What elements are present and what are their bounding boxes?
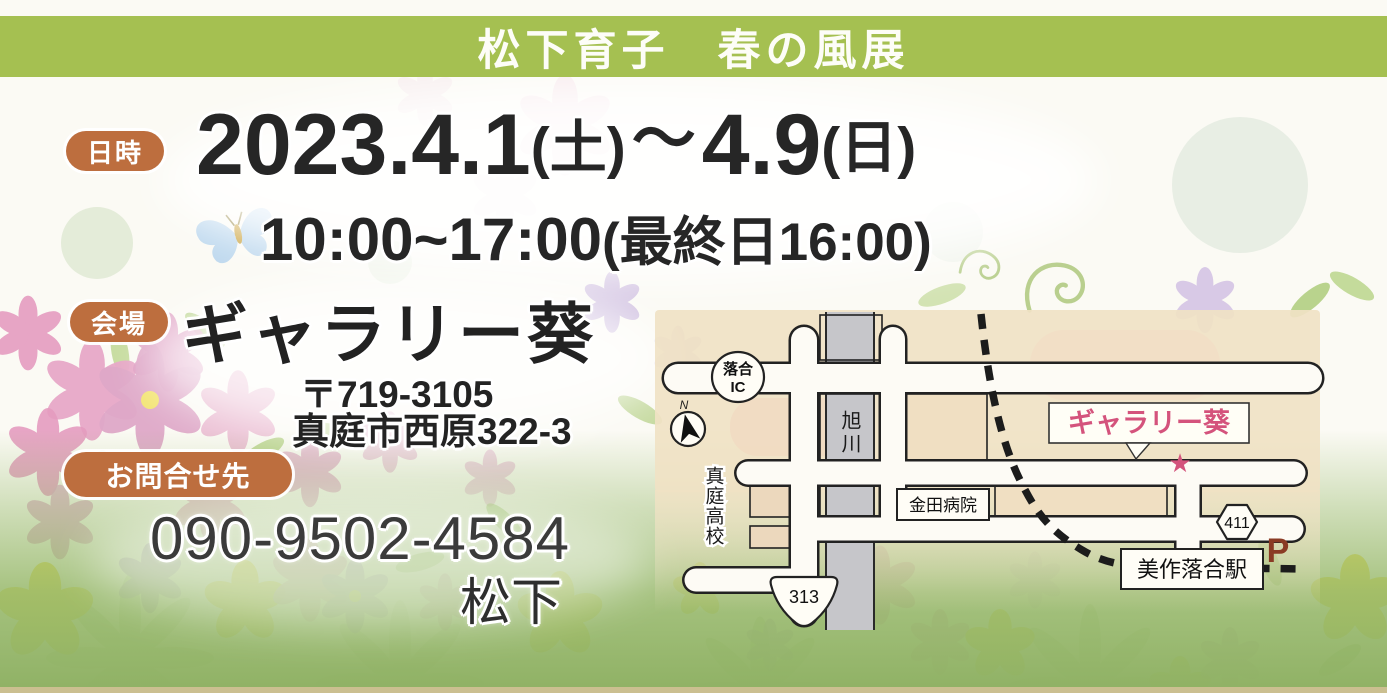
- exhibition-hours: 10:00~17:00(最終日16:00): [260, 200, 932, 276]
- river-label: 旭川: [838, 410, 861, 456]
- card-bottom-edge: [0, 687, 1387, 693]
- datetime-badge: 日時: [66, 131, 164, 171]
- svg-text:IC: IC: [731, 379, 746, 396]
- contact-badge: お問合せ先: [64, 452, 292, 497]
- venue-address: 真庭市西原322-3: [292, 401, 572, 455]
- svg-text:313: 313: [789, 587, 819, 607]
- svg-text:N: N: [680, 398, 689, 412]
- parking-icon: P: [1267, 532, 1290, 570]
- page-title: 松下育子 春の風展: [478, 16, 910, 78]
- route-411-sign: 411: [1217, 505, 1257, 539]
- svg-text:金田病院: 金田病院: [909, 496, 977, 515]
- svg-text:落合: 落合: [723, 360, 754, 378]
- title-bar: 松下育子 春の風展: [0, 16, 1387, 77]
- exhibition-dates: 2023.4.1(土)～4.9(日): [196, 96, 916, 195]
- hospital-label: 金田病院: [897, 489, 989, 520]
- contact-person: 松下: [460, 561, 562, 635]
- venue-badge: 会場: [70, 302, 168, 342]
- station-label: 美作落合駅: [1121, 549, 1263, 589]
- venue-name: ギャラリー葵: [182, 281, 596, 377]
- school-label: 真庭高校: [703, 466, 725, 546]
- access-map: N 落合 IC 313 411 金田病院 美作落合駅 P: [648, 296, 1348, 656]
- svg-text:411: 411: [1224, 515, 1250, 532]
- gallery-star-icon: ★: [1168, 448, 1191, 478]
- svg-text:ギャラリー葵: ギャラリー葵: [1068, 408, 1231, 438]
- interchange-sign: 落合 IC: [712, 352, 764, 402]
- exhibition-flyer: 松下育子 春の風展 日時 2023.4.1(土)～4.9(日) 10:00~17…: [0, 0, 1387, 693]
- svg-text:美作落合駅: 美作落合駅: [1137, 557, 1247, 582]
